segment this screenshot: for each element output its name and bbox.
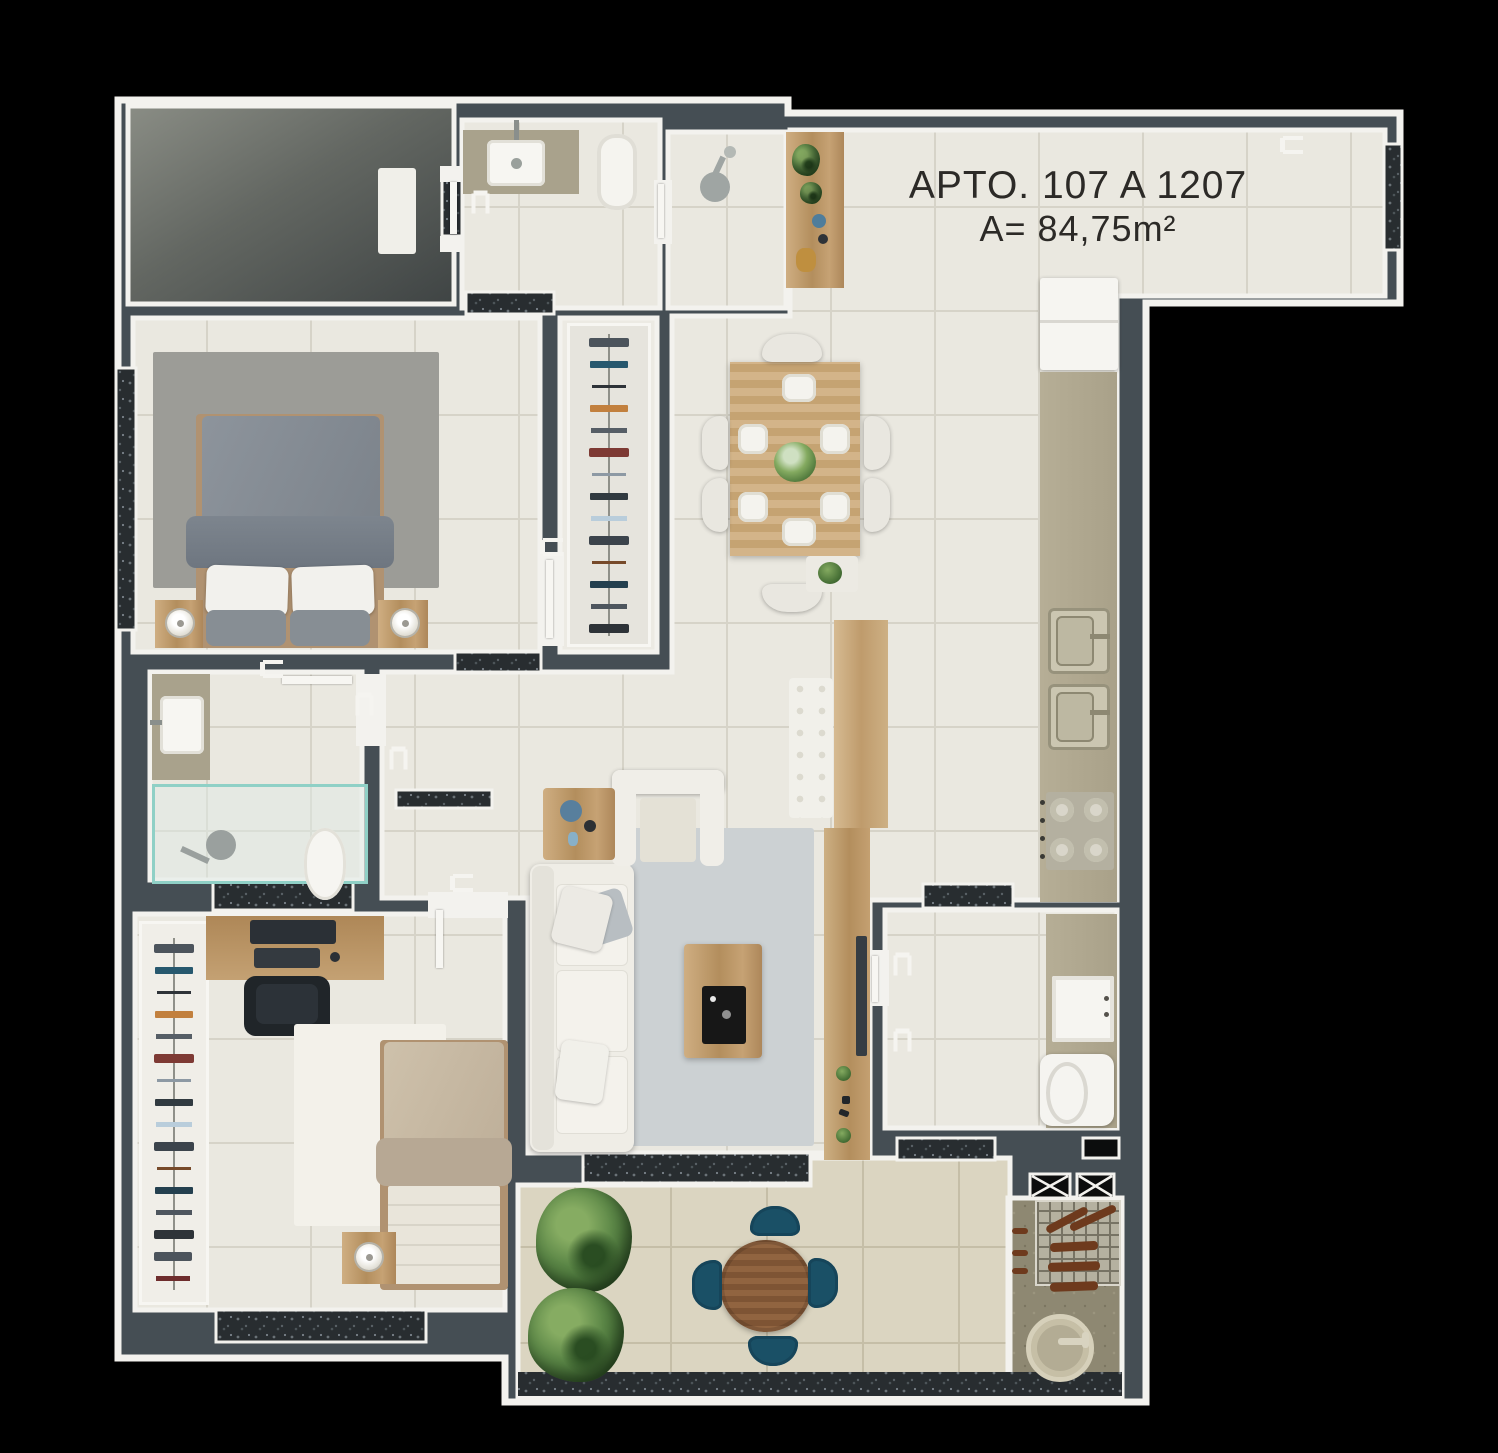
bath2-faucet-icon	[150, 720, 162, 725]
sideboard-vase-gold	[796, 248, 816, 272]
fridge-seam	[1040, 320, 1118, 323]
apartment-area: A= 84,75m²	[858, 208, 1298, 250]
bbq-skewer	[1048, 1261, 1100, 1272]
bbq-side-dash	[1012, 1250, 1028, 1256]
toilet	[304, 828, 346, 900]
nightstand2-lamp	[356, 1244, 382, 1270]
sideboard-vase-dark	[818, 234, 828, 244]
balcony-chair	[692, 1260, 722, 1310]
sofa-pillow	[554, 1039, 610, 1105]
side-table-decor-blue	[560, 800, 582, 822]
balcony-table	[720, 1240, 812, 1332]
bath2-shower-head-icon	[206, 830, 236, 860]
title-block: APTO. 107 A 1207 A= 84,75m²	[858, 164, 1298, 250]
desk-keyboard	[254, 948, 320, 968]
dining-plate	[738, 492, 768, 522]
corridor-granite	[396, 790, 492, 808]
bath2-door-leaf	[282, 676, 352, 684]
master-pillow-small	[206, 610, 286, 646]
kitchen-pass-window	[923, 884, 1013, 908]
bath1-drain-icon	[511, 158, 522, 169]
shower-door-leaf	[658, 184, 664, 238]
bedroom2-door-leaf	[436, 910, 443, 968]
armchair-arm	[612, 770, 636, 866]
tray-decor	[710, 996, 716, 1002]
door-marker-icon	[392, 747, 406, 776]
armchair-seat	[640, 798, 696, 862]
master-pillow-small	[290, 610, 370, 646]
dining-plate	[738, 424, 768, 454]
bbq-side-dash	[1012, 1228, 1028, 1234]
kitchen-faucet-icon	[1090, 710, 1110, 715]
desk-mouse	[330, 952, 340, 962]
door-marker-icon	[474, 191, 488, 220]
sideboard-vase-blue	[812, 214, 826, 228]
service-door-leaf	[872, 956, 878, 1002]
door-marker-icon	[896, 953, 910, 982]
service-bottom-window	[897, 1138, 995, 1160]
bed2-sheet	[388, 1186, 500, 1284]
bathtub	[597, 134, 637, 210]
door-marker-icon	[260, 662, 289, 676]
door-marker-icon	[1280, 138, 1309, 152]
dining-chair	[762, 334, 822, 362]
door-marker-icon	[896, 1029, 910, 1058]
dining-plate	[782, 518, 816, 546]
shower-room-floor	[668, 132, 786, 308]
door-marker-icon	[358, 693, 372, 722]
bed2-fold	[376, 1138, 512, 1186]
door-marker-icon	[540, 540, 569, 554]
cooktop-burner	[1084, 798, 1108, 822]
kitchen-faucet-icon	[1090, 634, 1110, 639]
master-window	[116, 368, 136, 630]
tv-screen	[856, 936, 867, 1056]
master-bottom-granite	[455, 652, 541, 672]
sofa-back	[532, 866, 554, 1150]
washtub-faucet-icon	[1082, 1332, 1089, 1348]
cooktop-burner	[1050, 798, 1074, 822]
side-table-decor-dark	[584, 820, 596, 832]
divider-plant	[818, 562, 842, 584]
door-marker-icon	[450, 876, 479, 890]
service-black-window	[1083, 1138, 1119, 1158]
divider-crochet-panel	[789, 678, 833, 818]
fridge	[1040, 278, 1118, 370]
master-bed-duvet	[202, 416, 380, 520]
apartment-title: APTO. 107 A 1207	[858, 164, 1298, 208]
bath2-sink	[160, 696, 204, 754]
divider-wood-column	[834, 620, 888, 828]
balcony-granite-border	[518, 1372, 1122, 1396]
wardrobe-clothes-icons	[154, 944, 194, 953]
desk-monitor	[250, 920, 336, 944]
shower-pipe-icon	[724, 146, 736, 158]
balcony-plant	[528, 1288, 624, 1382]
cooktop-knob	[1040, 800, 1045, 805]
master-bed-fold	[186, 516, 394, 568]
bbq-side-dash	[1012, 1268, 1028, 1274]
dining-plate	[820, 424, 850, 454]
dining-chair	[702, 478, 728, 532]
entry-door-jamb	[440, 236, 464, 252]
shower-head-icon	[700, 172, 730, 202]
nightstand-lamp	[167, 610, 193, 636]
bathroom1-granite	[466, 292, 554, 314]
side-table	[543, 788, 615, 860]
kitchen-sink-basin	[1056, 616, 1094, 666]
bedroom2-window	[216, 1310, 426, 1342]
washtub	[1026, 1314, 1094, 1382]
hall-bench	[378, 168, 416, 254]
entry-door-leaf	[450, 182, 457, 234]
closet-rail	[608, 334, 610, 636]
bed2-duvet	[384, 1042, 504, 1142]
master-door-leaf	[546, 560, 553, 638]
bbq-skewer	[1050, 1281, 1098, 1292]
sideboard-plant	[800, 182, 822, 204]
living-balcony-window	[583, 1153, 810, 1183]
cooktop-burner	[1050, 838, 1074, 862]
kitchen-window	[1384, 144, 1402, 250]
dining-chair	[864, 478, 890, 532]
dining-chair	[702, 416, 728, 470]
floorplan-stage: APTO. 107 A 1207 A= 84,75m²	[0, 0, 1498, 1453]
office-chair-seat	[256, 984, 318, 1024]
dining-centerpiece-plant	[774, 442, 816, 482]
side-table-decor-lightblue	[568, 832, 578, 846]
cabinet-handle-dot	[1104, 996, 1109, 1001]
dining-plate	[782, 374, 816, 402]
bath1-faucet-icon	[514, 120, 519, 140]
cooktop-burner	[1084, 838, 1108, 862]
console-plant	[836, 1128, 851, 1143]
laundry-sink-cabinet	[1052, 976, 1114, 1042]
balcony-plant	[536, 1188, 632, 1292]
closet-clothes-icons	[589, 338, 629, 347]
entry-door-jamb	[440, 166, 464, 182]
dining-plate	[820, 492, 850, 522]
kitchen-sink-basin	[1056, 692, 1094, 742]
tray-decor	[722, 1010, 731, 1019]
nightstand-lamp	[392, 610, 418, 636]
console-plant	[836, 1066, 851, 1081]
dining-chair	[864, 416, 890, 470]
armchair-arm	[700, 770, 724, 866]
wardrobe-clothes-icons	[154, 1252, 192, 1261]
washer-door-ring	[1046, 1062, 1088, 1124]
sideboard-plant	[792, 144, 820, 176]
wardrobe-rail	[173, 938, 175, 1290]
console-decor	[842, 1096, 850, 1104]
